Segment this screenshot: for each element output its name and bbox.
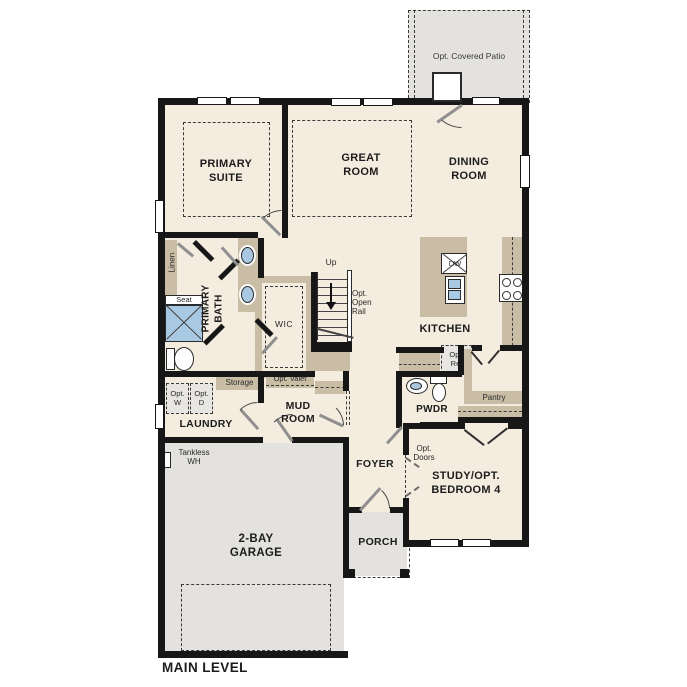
plan-title: MAIN LEVEL [162,660,282,677]
pantry-wall-top [472,345,482,351]
pwdr-sink-basin [410,382,422,390]
kitchen-sink [445,276,465,304]
suite-bottom-wall [158,232,258,238]
laundry-mud-wall [258,377,264,403]
garage-wall-right [343,437,349,578]
window [197,97,227,105]
bath-stair-wall [311,272,317,352]
shower-seat: Seat [165,295,203,305]
foyer-label: FOYER [352,458,398,471]
window [230,97,260,105]
laundry-label: LAUNDRY [168,418,244,431]
pwdr-sink [406,378,428,394]
pantry-wall-top [500,345,529,351]
opt-washer-label: Opt. W [170,390,184,407]
burner [502,278,511,287]
porch-label: PORCH [352,536,404,549]
stair-direction-arrowhead [326,302,336,310]
opt-open-rail-label: Opt. Open Rail [352,289,386,317]
garage-label: 2-BAY GARAGE [212,532,300,561]
stairs-up-label: Up [318,258,344,268]
linen-label: Linen [167,243,176,283]
window [462,539,491,547]
window [155,200,164,233]
dishwasher: DW [441,253,467,274]
window [363,98,393,106]
seat-label: Seat [166,296,202,305]
storage-label: Storage [217,378,262,387]
pwdr-label: PWDR [408,404,456,417]
window [430,539,459,547]
window [331,98,361,106]
wic-label: WIC [262,320,306,330]
shelf-rod-line [315,387,345,388]
great-room-label: GREAT ROOM [316,152,406,180]
pwdr-wall-left [396,371,402,428]
pwdr-wall-top [396,371,462,377]
kitchen-rear-wall [396,347,444,353]
sink-basin [448,279,461,289]
burner [502,291,511,300]
porch-column [348,569,355,578]
mudroom-shelf [315,381,345,394]
vanity-back-wall [258,238,264,278]
pwdr-toilet-bowl [432,383,446,402]
mud-closet-shelf [458,406,522,417]
optional-door-opening [405,455,406,498]
optional-dryer: Opt. D [190,383,213,414]
kitchen-label: KITCHEN [400,323,490,337]
opt-doors-label: Opt. Doors [408,444,440,462]
patio-structure [432,72,462,102]
vanity-sink [241,286,254,303]
patio-label: Opt. Covered Patio [414,52,524,62]
opt-dryer-label: Opt. D [194,390,208,407]
porch-column [400,569,409,578]
bath-laundry-wall [158,371,315,377]
suite-great-wall [282,98,288,238]
dining-room-label: DINING ROOM [424,156,514,184]
garage-wall-top [292,437,349,443]
study-wall-top [403,423,465,429]
window [472,97,500,105]
mud-hall-opening [349,391,350,425]
valet-rod-line [266,385,314,386]
window [520,155,530,188]
sink-basin [448,290,461,300]
mud-hall-opening [346,391,347,425]
shower [165,305,203,342]
counter-depth-line [399,364,440,365]
pantry-wall-left [458,345,464,375]
tankless-wh-label: Tankless WH [174,448,214,466]
understair-storage [313,352,350,371]
understair-wall [311,342,352,352]
exterior-wall-left [158,98,165,658]
optional-washer: Opt. W [166,383,189,414]
primary-suite-label: PRIMARY SUITE [181,158,271,186]
floor-plan: DW Opt. Ref Pantry Linen Seat [0,0,687,687]
garage-wall-top [158,437,263,443]
study-label: STUDY/OPT. BEDROOM 4 [418,470,514,498]
primary-bath-label: PRIMARY BATH [201,269,226,349]
study-wall-top [508,423,529,429]
cooktop [499,274,523,302]
pantry-label: Pantry [468,393,520,402]
garage-wall-bottom [158,651,348,658]
window [155,404,164,429]
vanity-sink [241,247,254,264]
burner [513,278,522,287]
stair-direction-line [330,283,332,303]
garage-door-outline [181,584,331,651]
mud-hall-wall [343,371,349,391]
burner [513,291,522,300]
dishwasher-label: DW [445,260,465,269]
shelf-rod-line [458,411,522,412]
bath-toilet-bowl [174,347,194,371]
mud-room-label: MUD ROOM [272,400,324,426]
